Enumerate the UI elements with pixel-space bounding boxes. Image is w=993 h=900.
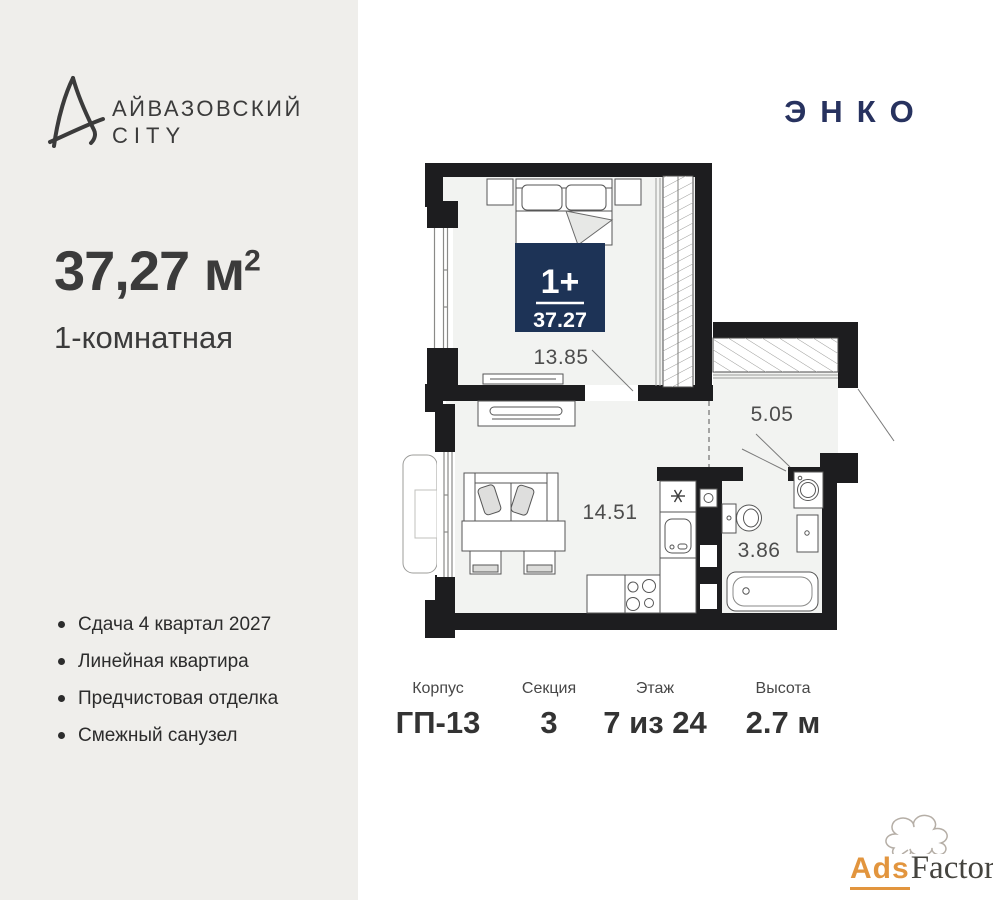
bullet-icon bbox=[58, 732, 65, 739]
bullet-icon bbox=[58, 621, 65, 628]
brand-monogram-icon bbox=[46, 72, 108, 154]
washing-machine bbox=[794, 472, 823, 508]
feature-item: Сдача 4 квартал 2027 bbox=[58, 614, 278, 636]
floor-plan: 1+ 37.27 bbox=[398, 150, 900, 650]
developer-logo: ЭНКО bbox=[766, 94, 946, 130]
bullet-icon bbox=[58, 658, 65, 665]
feature-item: Смежный санузел bbox=[58, 725, 278, 747]
bathtub bbox=[727, 572, 818, 611]
hall-closet bbox=[713, 338, 838, 378]
area-exponent: 2 bbox=[244, 244, 260, 277]
listing-flyer: { "brand": {"line1": "АЙВАЗОВСКИЙ", "lin… bbox=[0, 0, 993, 900]
toilet bbox=[722, 504, 762, 533]
brand-city-label: CITY bbox=[112, 123, 186, 149]
bullet-icon bbox=[58, 695, 65, 702]
detail-value: ГП-13 bbox=[396, 705, 481, 741]
feature-item: Линейная квартира bbox=[58, 651, 278, 673]
detail-label: Этаж bbox=[603, 680, 706, 698]
dresser bbox=[483, 374, 563, 384]
detail-korpus: Корпус ГП-13 bbox=[396, 680, 481, 741]
bedroom-window bbox=[429, 228, 453, 348]
brand-name: АЙВАЗОВСКИЙ bbox=[112, 96, 303, 122]
wall-shafts bbox=[700, 489, 717, 609]
living-area-label: 14.51 bbox=[582, 501, 637, 524]
badge-rooms: 1+ bbox=[541, 263, 580, 301]
kitchen-fridge bbox=[660, 481, 696, 512]
detail-value: 3 bbox=[522, 705, 576, 741]
detail-value: 7 из 24 bbox=[603, 705, 706, 741]
badge-area: 37.27 bbox=[533, 308, 587, 332]
kitchen-sink bbox=[660, 512, 696, 558]
kitchen-counter bbox=[660, 558, 696, 613]
cloud-icon bbox=[880, 806, 966, 854]
apartment-type: 1-комнатная bbox=[54, 320, 233, 356]
bath-sink bbox=[797, 515, 818, 552]
detail-label: Высота bbox=[746, 680, 821, 698]
stove bbox=[587, 575, 660, 613]
entry-door-swing bbox=[858, 389, 894, 441]
tv-stand bbox=[478, 401, 575, 426]
detail-sekcia: Секция 3 bbox=[522, 680, 576, 741]
watermark: AdsFactory bbox=[846, 806, 992, 896]
feature-list: Сдача 4 квартал 2027 Линейная квартира П… bbox=[58, 614, 278, 762]
living-window bbox=[437, 452, 455, 577]
watermark-factory: Factory bbox=[911, 850, 993, 887]
bedroom-area-label: 13.85 bbox=[533, 346, 588, 369]
bathroom-area-label: 3.86 bbox=[738, 539, 781, 562]
watermark-ads: Ads bbox=[850, 852, 910, 890]
detail-value: 2.7 м bbox=[746, 705, 821, 741]
detail-label: Корпус bbox=[396, 680, 481, 698]
hallway-area-label: 5.05 bbox=[751, 403, 794, 426]
ac-unit bbox=[403, 455, 437, 573]
plan-badge: 1+ 37.27 bbox=[515, 243, 605, 332]
detail-etazh: Этаж 7 из 24 bbox=[603, 680, 706, 741]
apartment-area: 37,27 м2 bbox=[54, 238, 260, 303]
feature-item: Предчистовая отделка bbox=[58, 688, 278, 710]
detail-vysota: Высота 2.7 м bbox=[746, 680, 821, 741]
dining-table bbox=[462, 521, 565, 551]
sofa bbox=[464, 473, 558, 527]
detail-label: Секция bbox=[522, 680, 576, 698]
brand-logo: АЙВАЗОВСКИЙ CITY bbox=[46, 72, 346, 162]
